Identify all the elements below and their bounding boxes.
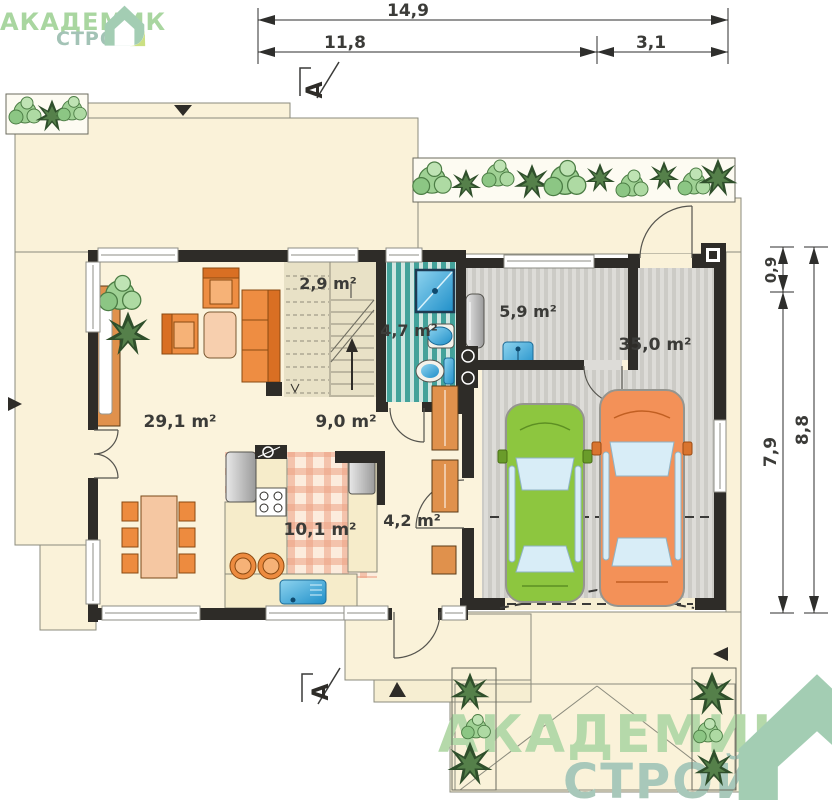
window — [714, 420, 726, 492]
window — [266, 606, 356, 620]
floor-plan-canvas: АКАДЕМИК СТРОЙ АКАДЕМИК СТРОЙ — [0, 0, 832, 800]
hall-wardrobes — [432, 386, 458, 574]
driveway-right-strip — [726, 252, 741, 614]
dim-right-inner: 7,9 — [761, 437, 781, 467]
window — [288, 248, 358, 262]
dining-chair — [179, 502, 195, 521]
label-living: 29,1 m² — [143, 412, 216, 432]
toilet-tank — [444, 358, 454, 384]
window — [504, 255, 594, 268]
section-marker-top: A — [300, 62, 339, 99]
window — [442, 606, 466, 620]
window — [102, 606, 200, 620]
label-under-stairs: 2,9 m² — [299, 274, 357, 293]
label-garage: 35,0 m² — [618, 335, 691, 355]
coffee-table — [204, 312, 236, 358]
vent-shaft — [701, 243, 726, 268]
dining-chair — [122, 554, 138, 573]
window — [386, 248, 422, 262]
watermark-small: АКАДЕМИК СТРОЙ — [0, 6, 166, 50]
label-entry: 4,2 m² — [383, 511, 441, 530]
dining-chair — [122, 502, 138, 521]
label-hall: 9,0 m² — [315, 412, 376, 432]
boiler — [466, 294, 484, 348]
window — [86, 262, 100, 332]
label-bathroom: 4,7 m² — [380, 321, 438, 340]
dim-total-width: 14,9 — [387, 1, 429, 21]
stove — [256, 488, 286, 516]
section-label-bottom: A — [309, 683, 334, 700]
window — [86, 540, 100, 604]
brand-sub-large: СТРОЙ — [563, 753, 757, 800]
dim-right-upper: 0,9 — [762, 257, 780, 284]
dim-right-outer: 8,8 — [793, 415, 813, 445]
dining-chair — [179, 554, 195, 573]
shoe-cabinet — [432, 546, 456, 574]
window — [344, 606, 388, 620]
car-green — [498, 404, 592, 602]
dim-left-width: 11,8 — [324, 33, 366, 53]
dining-chair — [179, 528, 195, 547]
dim-right-width: 3,1 — [636, 33, 666, 53]
window — [98, 248, 178, 262]
dining-chair — [122, 528, 138, 547]
dining-table — [141, 496, 177, 578]
car-orange — [592, 390, 692, 606]
fridge — [226, 452, 256, 502]
brand-logo-large-icon — [739, 674, 832, 800]
section-marker-bottom: A — [302, 668, 340, 704]
terrace-left — [15, 252, 96, 545]
terrace-top — [15, 118, 418, 254]
kitchen-sink — [280, 580, 326, 604]
label-kitchen: 10,1 m² — [283, 520, 356, 540]
section-label-top: A — [303, 81, 328, 98]
label-utility: 5,9 m² — [499, 302, 557, 321]
